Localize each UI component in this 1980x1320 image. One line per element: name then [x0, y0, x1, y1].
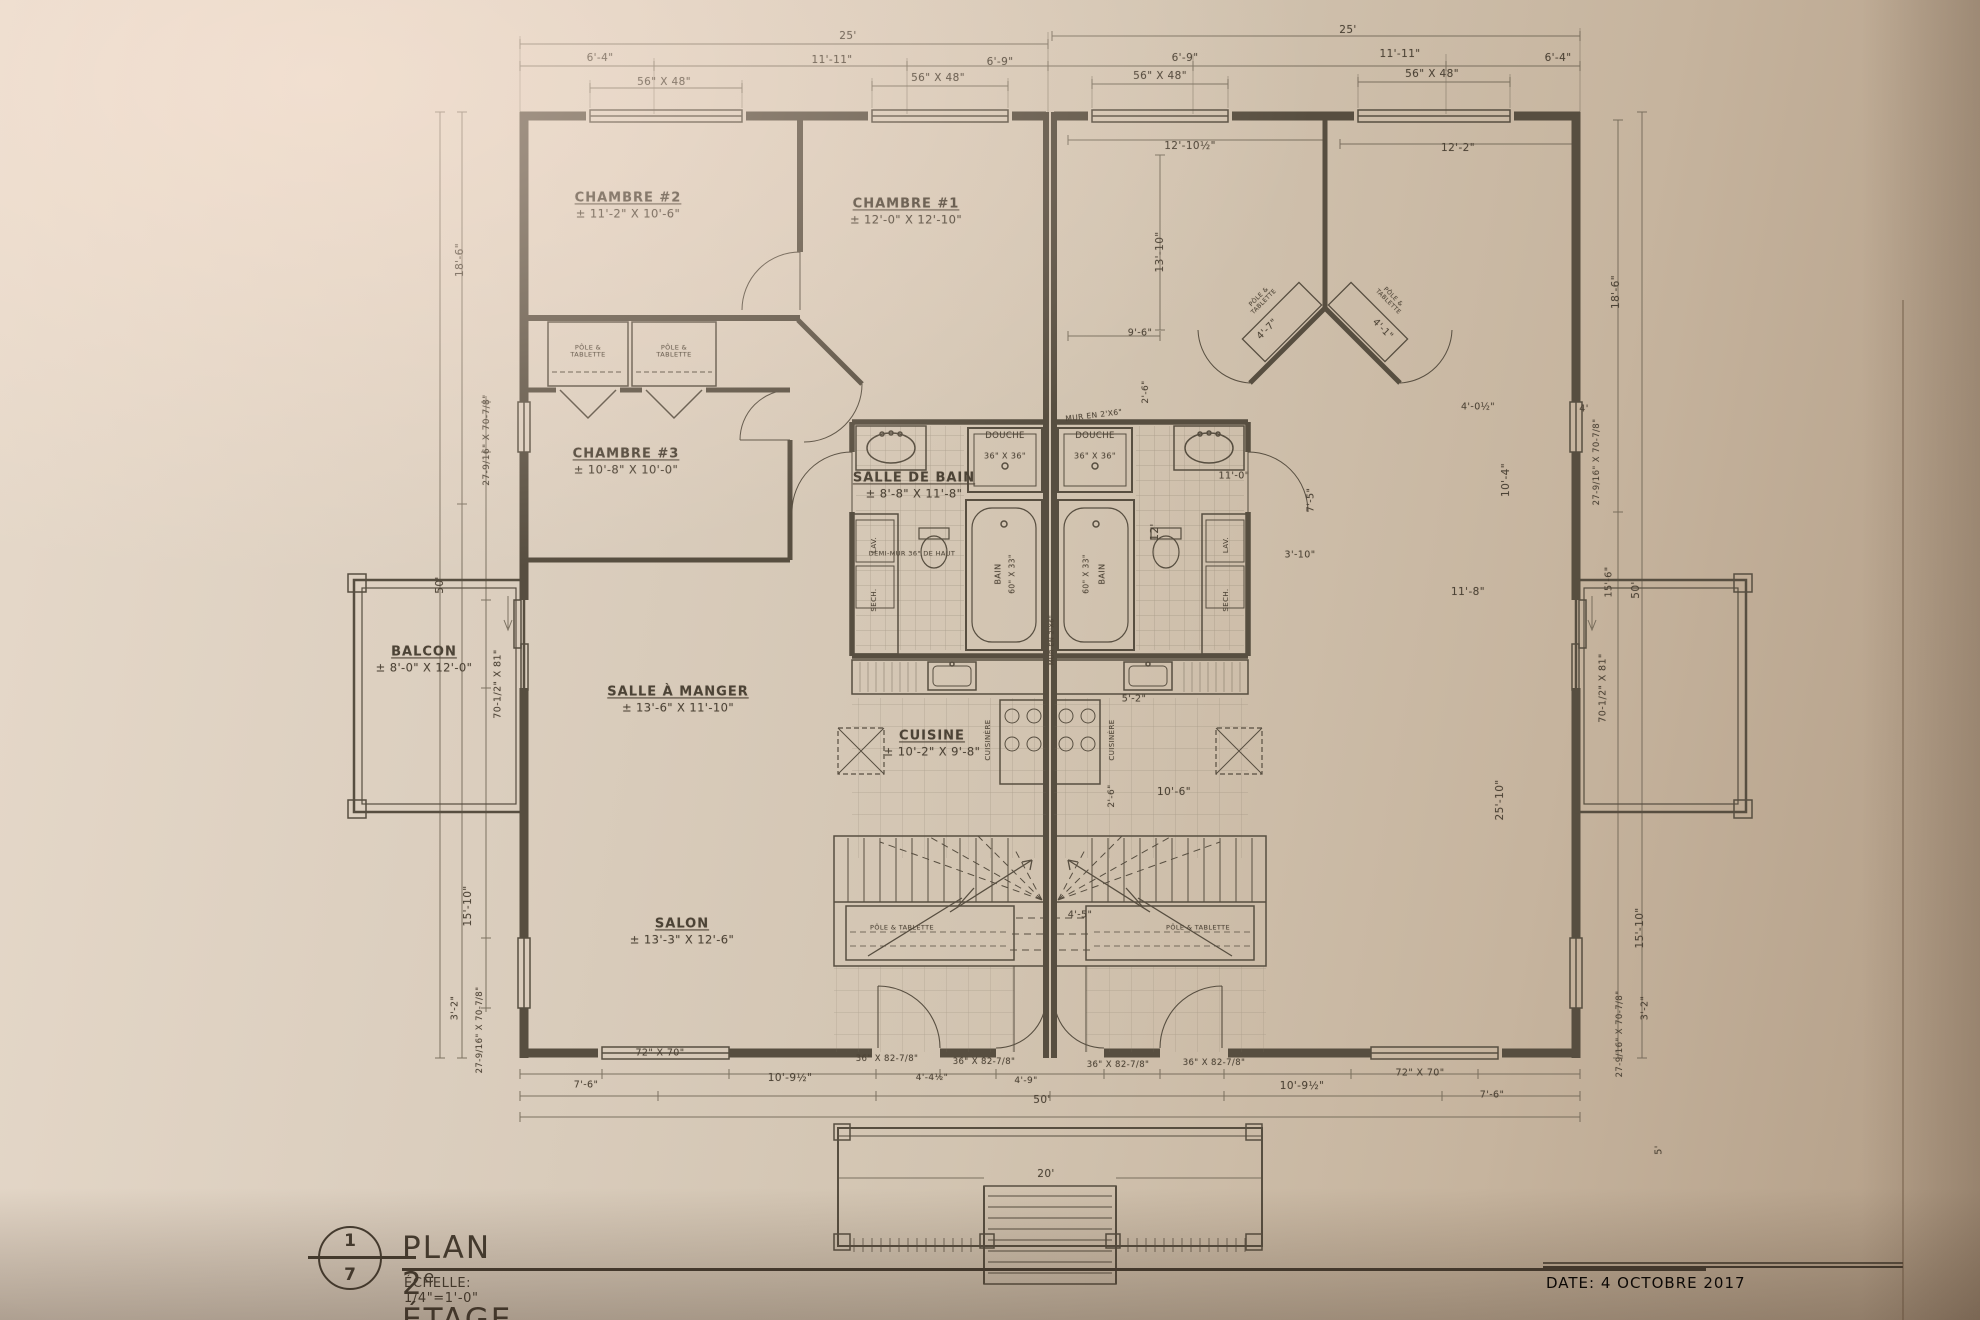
- dimension-label: 12': [1149, 523, 1161, 540]
- dimension-label: 25': [1339, 24, 1356, 36]
- sheet-scale: ÉCHELLE: 1/4"=1'-0": [404, 1276, 479, 1306]
- fixture-label: DEMI-MUR 36" DE HAUT: [869, 550, 956, 557]
- dimension-label: 25': [839, 30, 856, 42]
- dimension-label: 6'-9": [1172, 52, 1199, 64]
- dimension-label: 27-9/16" X 70-7/8": [1616, 991, 1626, 1078]
- fixture-label: 60" X 33": [1009, 554, 1018, 594]
- fixture-label: CUISINÈRE: [1108, 719, 1116, 760]
- dimension-label: 11'-8": [1451, 586, 1485, 598]
- dimension-label: 4': [1579, 405, 1588, 416]
- dimension-label: 13'-10": [1154, 231, 1166, 272]
- room-name: SALON: [630, 917, 734, 932]
- room-size: ± 13'-6" X 11'-10": [607, 701, 748, 714]
- fixture-label: CUISINÈRE: [984, 719, 992, 760]
- dimension-label: 50': [434, 576, 446, 593]
- dimension-label: 70-1/2" X 81": [494, 649, 505, 718]
- room-name: CHAMBRE #1: [850, 197, 962, 212]
- dimension-label: 15'-6": [1605, 567, 1616, 598]
- dimension-label: 27-9/16" X 70-7/8": [1593, 419, 1603, 506]
- fixture-label: SECH.: [870, 588, 878, 611]
- room-name: BALCON: [376, 645, 473, 660]
- dimension-label: 4'-0½": [1461, 403, 1495, 414]
- sheet-number: 1: [320, 1231, 380, 1251]
- sheet-number-divider: [308, 1256, 416, 1259]
- room-name: SALLE À MANGER: [607, 685, 748, 700]
- dimension-label: 20': [1037, 1168, 1054, 1180]
- dimension-label: 50': [1033, 1094, 1050, 1106]
- sheet-total: 7: [320, 1265, 380, 1285]
- room-label: SALLE À MANGER± 13'-6" X 11'-10": [607, 685, 748, 714]
- dimension-label: 3'-2": [1641, 996, 1652, 1021]
- dimension-label: 18'-6": [454, 243, 466, 277]
- dimension-label: 36" X 82-7/8": [856, 1055, 919, 1065]
- dimension-label: 7'-6": [1480, 1091, 1505, 1102]
- dimension-label: 56" X 48": [1405, 68, 1459, 80]
- dimension-label: 12'-2": [1441, 142, 1475, 154]
- room-name: SALLE DE BAIN: [853, 471, 975, 486]
- dimension-label: 11'-11": [1379, 48, 1420, 60]
- title-rule: [402, 1268, 1706, 1271]
- dimension-label: 10'-6": [1157, 786, 1191, 798]
- dimension-label: 72" X 70": [1395, 1069, 1444, 1080]
- dimension-label: 72" X 70": [635, 1049, 684, 1060]
- dimension-label: 25'-10": [1494, 779, 1506, 820]
- dimension-label: 2'-6": [1107, 784, 1117, 807]
- room-size: ± 8'-8" X 11'-8": [853, 487, 975, 500]
- room-size: ± 10'-8" X 10'-0": [573, 463, 680, 476]
- room-size: ± 11'-2" X 10'-6": [575, 207, 682, 220]
- dimension-label: 5': [1655, 1145, 1666, 1154]
- dimension-label: 10'-9½": [1280, 1080, 1325, 1092]
- dimension-label: 7'-5": [1307, 488, 1318, 513]
- room-label: SALON± 13'-3" X 12'-6": [630, 917, 734, 946]
- room-size: ± 13'-3" X 12'-6": [630, 933, 734, 946]
- dimension-label: 6'-9": [987, 56, 1014, 68]
- dimension-label: 27-9/16" X 70-7/8": [482, 394, 492, 485]
- fixture-label: PÔLE & TABLETTE: [559, 345, 617, 360]
- dimension-label: 36" X 82-7/8": [1183, 1059, 1246, 1069]
- room-label: CUISINE± 10'-2" X 9'-8": [884, 729, 981, 758]
- dimension-label: 11'-0": [1219, 472, 1250, 483]
- room-label: CHAMBRE #3± 10'-8" X 10'-0": [573, 447, 680, 476]
- fixture-label: BAIN: [1097, 564, 1106, 585]
- fixture-label: PÔLE & TABLETTE: [1365, 275, 1414, 324]
- dimension-label: 56" X 48": [1133, 70, 1187, 82]
- dimension-label: 3'-2": [451, 996, 462, 1021]
- fixture-label: 36" X 36": [984, 451, 1026, 460]
- dimension-label: 70-1/2" X 81": [1599, 653, 1610, 722]
- dimension-label: 18'-6": [1610, 275, 1622, 309]
- dimension-label: 9'-6": [1128, 329, 1153, 340]
- room-size: ± 12'-0" X 12'-10": [850, 213, 962, 226]
- fixture-label: PÔLE & TABLETTE: [1237, 275, 1286, 324]
- dimension-label: 4'-7": [1255, 317, 1280, 342]
- fixture-label: 36" X 36": [1074, 451, 1116, 460]
- fixture-label: MUR EN 2'X6": [1065, 408, 1123, 424]
- dimension-label: 36" X 82-7/8": [1087, 1061, 1150, 1071]
- sheet-title: PLAN 2e ÉTAGE: [402, 1230, 512, 1320]
- fixture-label: 60" X 33": [1083, 554, 1092, 594]
- room-size: ± 10'-2" X 9'-8": [884, 745, 981, 758]
- dimension-label: 10'-9½": [768, 1072, 813, 1084]
- dimension-label: 4'-4½": [916, 1073, 948, 1083]
- dimension-label: 15'-10": [1634, 907, 1646, 948]
- fixture-label: LAV.: [1222, 537, 1230, 553]
- room-label: BALCON± 8'-0" X 12'-0": [376, 645, 473, 674]
- dimension-label: 36" X 82-7/8": [953, 1058, 1016, 1068]
- fixture-label: MUR EN 2'X6": [1048, 615, 1055, 665]
- room-size: ± 8'-0" X 12'-0": [376, 661, 473, 674]
- dimension-label: 12'-10½": [1164, 140, 1216, 152]
- dimension-label: 4'-1": [1369, 317, 1394, 342]
- room-label: CHAMBRE #2± 11'-2" X 10'-6": [575, 191, 682, 220]
- room-name: CHAMBRE #2: [575, 191, 682, 206]
- fixture-label: PÔLE & TABLETTE: [869, 924, 935, 931]
- dimension-label: 4'-9": [1014, 1076, 1037, 1086]
- dimension-label: 3'-10": [1285, 551, 1316, 562]
- dimension-label: 27-9/16" X 70-7/8": [476, 987, 486, 1074]
- fixture-label: DOUCHE: [985, 432, 1025, 442]
- blueprint-photo: CHAMBRE #2± 11'-2" X 10'-6"CHAMBRE #1± 1…: [0, 0, 1980, 1320]
- room-name: CHAMBRE #3: [573, 447, 680, 462]
- fixture-label: PÔLE & TABLETTE: [1165, 924, 1231, 931]
- room-label: CHAMBRE #1± 12'-0" X 12'-10": [850, 197, 962, 226]
- dimension-label: 56" X 48": [637, 76, 691, 88]
- dimension-label: 11'-11": [811, 54, 852, 66]
- room-label: SALLE DE BAIN± 8'-8" X 11'-8": [853, 471, 975, 500]
- fixture-label: SECH.: [1222, 588, 1230, 611]
- dimension-label: 56" X 48": [911, 72, 965, 84]
- room-name: CUISINE: [884, 729, 981, 744]
- fixture-label: BAIN: [993, 564, 1002, 585]
- dimension-label: 15'-10": [462, 885, 474, 926]
- dimension-label: 10'-4": [1500, 463, 1512, 497]
- dimension-label: 7'-6": [574, 1081, 599, 1092]
- fixture-label: DOUCHE: [1075, 432, 1115, 442]
- dimension-label: 50': [1630, 581, 1642, 598]
- dimension-label: 5'-2": [1122, 695, 1147, 706]
- dimension-label: 2'-6": [1141, 380, 1151, 403]
- fixture-label: PÔLE & TABLETTE: [645, 345, 703, 360]
- dimension-label: 4'-5": [1068, 911, 1093, 922]
- dimension-label: 6'-4": [587, 52, 614, 64]
- plan-labels: CHAMBRE #2± 11'-2" X 10'-6"CHAMBRE #1± 1…: [0, 0, 1980, 1320]
- dimension-label: 6'-4": [1545, 52, 1572, 64]
- sheet-number-bubble: 1 7: [318, 1226, 382, 1290]
